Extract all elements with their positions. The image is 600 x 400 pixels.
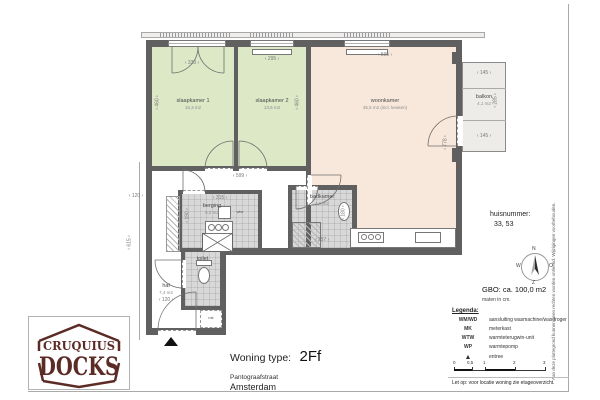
window-woonkamer xyxy=(344,40,390,47)
hob-burner-1 xyxy=(361,234,367,240)
woningtype-label: Woning type: xyxy=(230,352,291,364)
label-toilet: toilet xyxy=(185,256,220,263)
room-area: 7,4 m2 xyxy=(150,290,182,296)
washer-knob-3 xyxy=(222,224,229,231)
floorplan-sheet: slaapkamer 1 15,3 m2 slaapkamer 2 13,6 m… xyxy=(0,0,600,400)
note-text: Let op: voor locatie woning zie etageove… xyxy=(452,380,570,386)
dim-sk2-height: 460 xyxy=(296,73,301,133)
gbo-text: GBO: ca. 100,0 m2 xyxy=(482,285,546,294)
scale-tick xyxy=(545,367,546,371)
hob-burner-3 xyxy=(375,234,381,240)
exterior-edge-left xyxy=(139,162,140,340)
legend-abbr: WM/WD xyxy=(452,316,484,325)
balkon-division-1 xyxy=(462,88,506,89)
scale-bar: 0 0,5 1 2 3 xyxy=(454,362,550,374)
dim-sk1-width: 333 xyxy=(162,61,222,66)
room-name: toilet xyxy=(185,256,220,263)
cruquius-docks-logo: CRUQUIUS DOCKS xyxy=(29,317,129,389)
shaft-box xyxy=(202,233,233,252)
titleblock: Woning type: 2Ff Pantograafstraat Amster… xyxy=(230,348,321,392)
vent-grille-1 xyxy=(160,33,230,37)
room-name: hal xyxy=(150,283,182,290)
washer-knob-2 xyxy=(215,224,222,231)
scale-tick-label: 3 xyxy=(543,360,546,365)
vent-grille-2 xyxy=(250,33,294,37)
opening-balkon-door xyxy=(457,116,463,146)
dim-berging-width: 315 xyxy=(190,196,250,201)
dim-balkon-right: 285 xyxy=(494,71,499,131)
compass-needle-icon xyxy=(521,253,549,281)
wall-sk2-woonkamer xyxy=(306,47,311,248)
french-door-sk1 xyxy=(168,40,226,47)
opening-entree-door xyxy=(158,330,196,335)
dim-hall-top: 599 xyxy=(210,174,270,179)
room-name: balkon xyxy=(462,94,506,101)
logo-box: CRUQUIUS DOCKS xyxy=(28,316,130,390)
kitchen-sink xyxy=(415,232,441,243)
wall-berging-right xyxy=(258,190,262,252)
frame-legend-divider xyxy=(448,377,569,378)
huisnummer-value: 33, 53 xyxy=(490,220,530,230)
room-area: 45,5 m2 (incl. keuken) xyxy=(330,105,440,111)
label-balkon: balkon 4,1 m2 xyxy=(462,94,506,107)
toilet-bowl xyxy=(198,267,210,284)
closet-hal xyxy=(166,196,180,252)
scale-segment-2 xyxy=(485,369,515,371)
opening-sk1-door xyxy=(205,168,233,172)
shower xyxy=(292,222,321,248)
woningtype-value: 2Ff xyxy=(300,348,322,365)
vent-grille-3 xyxy=(344,33,390,37)
room-name: berging xyxy=(182,203,242,210)
window-sk2 xyxy=(250,40,294,47)
dim-left-vertical: 615 xyxy=(128,213,133,273)
dim-sk1-height: 460 xyxy=(156,73,161,133)
room-name: woonkamer xyxy=(330,98,440,105)
huisnummer-label: huisnummer: xyxy=(490,210,530,220)
dim-berging-height: 190 xyxy=(186,186,191,246)
huisnummer-block: huisnummer: 33, 53 xyxy=(490,210,530,230)
dim-woonkamer-height: 778 xyxy=(444,113,449,173)
dim-balkon-bottom: 145 xyxy=(454,134,514,139)
scale-tick-label: 0 xyxy=(453,360,456,365)
washer-knob-1 xyxy=(208,224,215,231)
label-slaapkamer1: slaapkamer 1 15,3 m2 xyxy=(152,98,234,111)
dim-sk2-width: 295 xyxy=(242,57,302,62)
compass-w: W xyxy=(516,263,521,269)
room-name: slaapkamer 1 xyxy=(152,98,234,105)
marker-mk: mk xyxy=(203,316,219,320)
logo-line2: DOCKS xyxy=(39,352,119,381)
room-area: 4,1 m2 xyxy=(462,101,506,107)
label-hal: hal 7,4 m2 xyxy=(150,283,182,296)
radiator-sk2 xyxy=(252,49,292,55)
legend-abbr: MK xyxy=(452,325,484,334)
dim-left-small: 120 xyxy=(106,194,166,199)
scale-tick-label: 0,5 xyxy=(467,360,473,365)
city-text: Amsterdam xyxy=(230,382,321,392)
scale-tick-label: 1 xyxy=(483,360,486,365)
logo-line1: CRUQUIUS xyxy=(43,338,115,353)
street-text: Pantograafstraat xyxy=(230,374,321,381)
frame-right xyxy=(568,4,569,392)
compass-n: N xyxy=(532,246,536,252)
opening-toilet-door xyxy=(182,260,186,288)
label-woonkamer: woonkamer 45,5 m2 (incl. keuken) xyxy=(330,98,440,111)
scale-tick-label: 2 xyxy=(513,360,516,365)
dim-badkamer-height: 180 xyxy=(342,183,347,243)
room-area: 15,3 m2 xyxy=(152,105,234,111)
entree-triangle xyxy=(164,337,178,346)
maten-text: maten in cm. xyxy=(482,297,511,303)
scale-tick xyxy=(515,367,516,371)
balkon-division-2 xyxy=(462,120,506,121)
marker-wtw: wtw xyxy=(233,210,247,214)
legend-abbr: WP xyxy=(452,343,484,352)
scale-tick xyxy=(472,367,473,371)
dim-woonkamer-width: 595 xyxy=(350,53,420,58)
dim-hal-width: 120 xyxy=(136,298,196,303)
hob-burner-2 xyxy=(368,234,374,240)
disclaimer-vertical: Aan deze plattegrond kunnen geen rechten… xyxy=(551,170,560,380)
dim-balkon-top: 145 xyxy=(454,71,514,76)
opening-sk2-door xyxy=(239,168,267,172)
legend-abbr: WTW xyxy=(452,334,484,343)
compass-rose: N O Z W xyxy=(516,246,554,286)
scale-segment-1 xyxy=(454,369,472,371)
